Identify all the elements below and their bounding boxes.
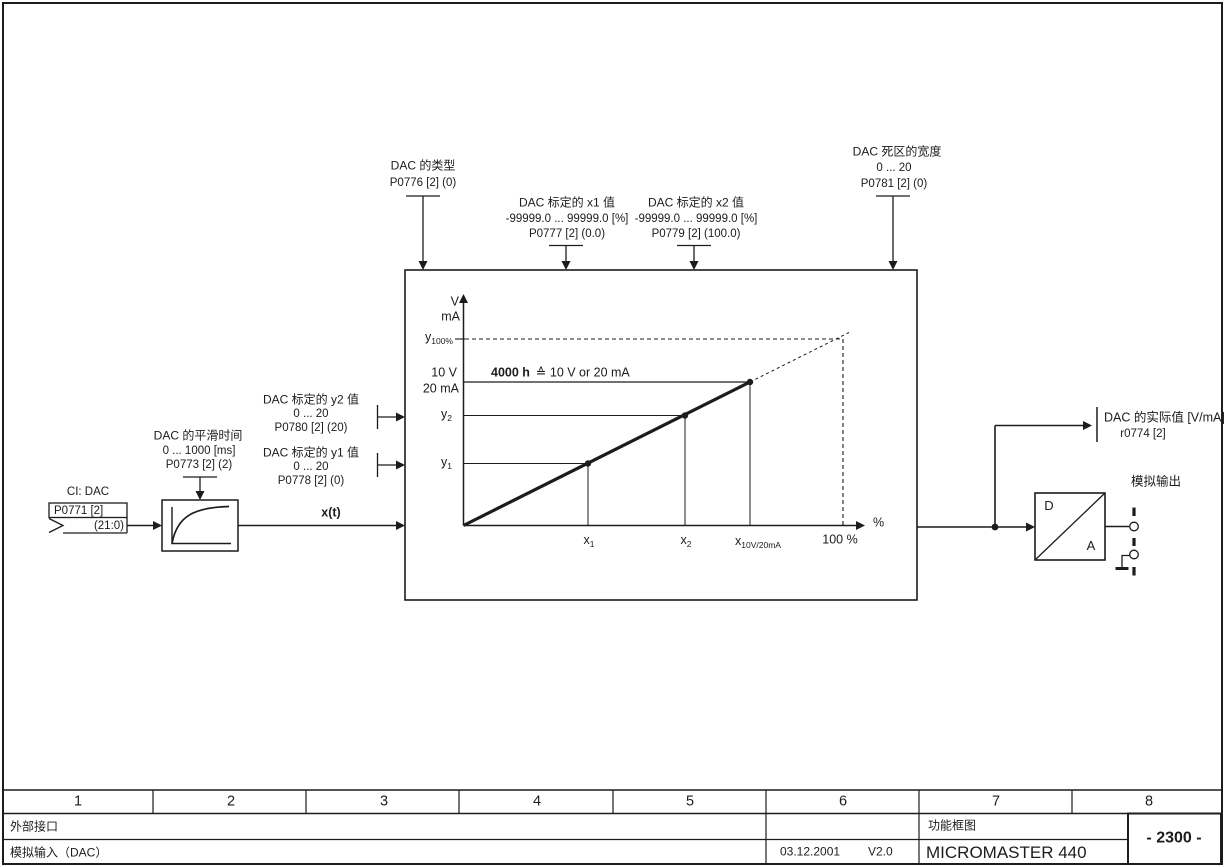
label-xt: x(t) <box>321 506 340 519</box>
label-percent-axis: % <box>873 516 884 529</box>
column-number-3: 3 <box>380 794 388 809</box>
label-y2-axis: y2 <box>441 408 452 423</box>
label-deadband-range: 0 ... 20 <box>876 162 911 174</box>
param-arrow-x1 <box>549 246 583 271</box>
param-arrow-x2 <box>677 246 711 271</box>
label-da-d: D <box>1044 499 1053 513</box>
label-x2-axis: x2 <box>681 534 692 549</box>
label-actual-value-title: DAC 的实际值 [V/mA] <box>1104 411 1225 424</box>
smoothing-block <box>162 500 238 551</box>
label-y1-range: 0 ... 20 <box>293 461 328 473</box>
label-y2-param: P0780 [2] (20) <box>275 422 348 434</box>
label-deadband-param: P0781 [2] (0) <box>861 178 927 190</box>
label-100-percent: 100 % <box>822 533 857 546</box>
exponential-curve-icon <box>172 507 229 544</box>
label-x1-range: -99999.0 ... 99999.0 [%] <box>506 213 629 225</box>
column-number-2: 2 <box>227 794 235 809</box>
point-xref <box>747 379 753 385</box>
titleblock-page-number: - 2300 - <box>1146 831 1201 848</box>
point-x1 <box>585 460 591 466</box>
titleblock-doc-type: 功能框图 <box>928 820 976 833</box>
label-deadband-title: DAC 死区的宽度 <box>853 146 942 159</box>
terminal-circle-2 <box>1130 550 1139 559</box>
label-ref-note: 4000 h≙ 10 V or 20 mA <box>491 366 630 379</box>
column-number-4: 4 <box>533 794 541 809</box>
scaling-line-extension <box>750 333 849 383</box>
titleblock-version: V2.0 <box>868 846 893 859</box>
label-y100: y100% <box>425 331 453 346</box>
y-axis-arrow-icon <box>459 294 468 303</box>
label-dac-type-title: DAC 的类型 <box>391 160 456 173</box>
titleblock-product: MICROMASTER 440 <box>926 844 1087 862</box>
label-ref-20ma: 20 mA <box>423 382 459 395</box>
terminal-circle-1 <box>1130 522 1139 531</box>
label-ref-10v: 10 V <box>431 366 457 379</box>
label-y2-title: DAC 标定的 y2 值 <box>263 394 359 407</box>
label-analog-output: 模拟输出 <box>1131 475 1181 488</box>
column-number-7: 7 <box>992 794 1000 809</box>
function-diagram-page: DAC 的类型 P0776 [2] (0) DAC 标定的 x1 值 -9999… <box>0 0 1225 867</box>
label-x2-title: DAC 标定的 x2 值 <box>648 197 744 210</box>
label-x1-title: DAC 标定的 x1 值 <box>519 197 615 210</box>
column-number-5: 5 <box>686 794 694 809</box>
label-ci-dac: CI: DAC <box>67 486 109 498</box>
label-y2-range: 0 ... 20 <box>293 408 328 420</box>
param-arrow-dac-type <box>406 196 440 270</box>
label-y1-axis: y1 <box>441 456 452 471</box>
label-xref-axis: x10V/20mA <box>735 535 781 550</box>
column-number-8: 8 <box>1145 794 1153 809</box>
label-dac-type-param: P0776 [2] (0) <box>390 177 456 189</box>
titleblock-interface: 外部接口 <box>10 821 58 834</box>
label-unit-v: V <box>451 295 459 308</box>
connector-bits-value: (21:0) <box>94 520 124 532</box>
label-smoothing-title: DAC 的平滑时间 <box>154 430 243 443</box>
connector-param-value: P0771 [2] <box>54 505 103 517</box>
label-x2-param: P0779 [2] (100.0) <box>652 228 741 240</box>
label-y1-param: P0778 [2] (0) <box>278 475 344 487</box>
point-x2 <box>682 412 688 418</box>
output-wiring <box>917 407 1097 532</box>
x-axis-arrow-icon <box>856 521 865 530</box>
titleblock-date: 03.12.2001 <box>780 846 840 859</box>
label-x1-param: P0777 [2] (0.0) <box>529 228 605 240</box>
label-actual-value-param: r0774 [2] <box>1120 428 1165 440</box>
param-arrow-smoothing <box>183 477 217 500</box>
label-x1-axis: x1 <box>584 534 595 549</box>
param-arrow-y2 <box>378 405 406 429</box>
scaling-graph <box>455 294 865 530</box>
titleblock-sheet-title: 模拟输入（DAC） <box>10 847 107 860</box>
label-y1-title: DAC 标定的 y1 值 <box>263 447 359 460</box>
column-number-6: 6 <box>839 794 847 809</box>
label-x2-range: -99999.0 ... 99999.0 [%] <box>635 213 758 225</box>
wire-xt <box>238 521 405 530</box>
label-da-a: A <box>1087 539 1096 553</box>
label-smoothing-param: P0773 [2] (2) <box>166 459 232 471</box>
scaling-line <box>464 382 751 526</box>
label-unit-ma: mA <box>441 310 460 323</box>
param-arrow-deadband <box>876 196 910 270</box>
param-arrow-y1 <box>378 453 406 477</box>
wire-input-to-smoothing <box>127 521 162 530</box>
analog-output-terminals <box>1105 508 1138 576</box>
label-smoothing-range: 0 ... 1000 [ms] <box>163 445 236 457</box>
scaling-function-box <box>405 270 917 600</box>
column-number-1: 1 <box>74 794 82 809</box>
